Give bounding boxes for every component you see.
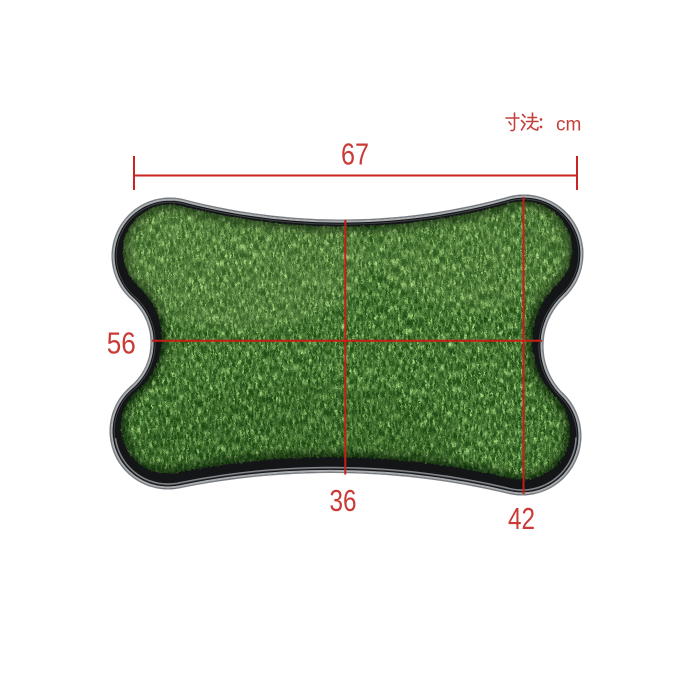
- svg-text:56: 56: [107, 326, 136, 361]
- svg-text:cm: cm: [556, 115, 581, 136]
- svg-text:67: 67: [341, 137, 369, 172]
- svg-text:36: 36: [330, 483, 357, 518]
- svg-text:42: 42: [508, 501, 535, 536]
